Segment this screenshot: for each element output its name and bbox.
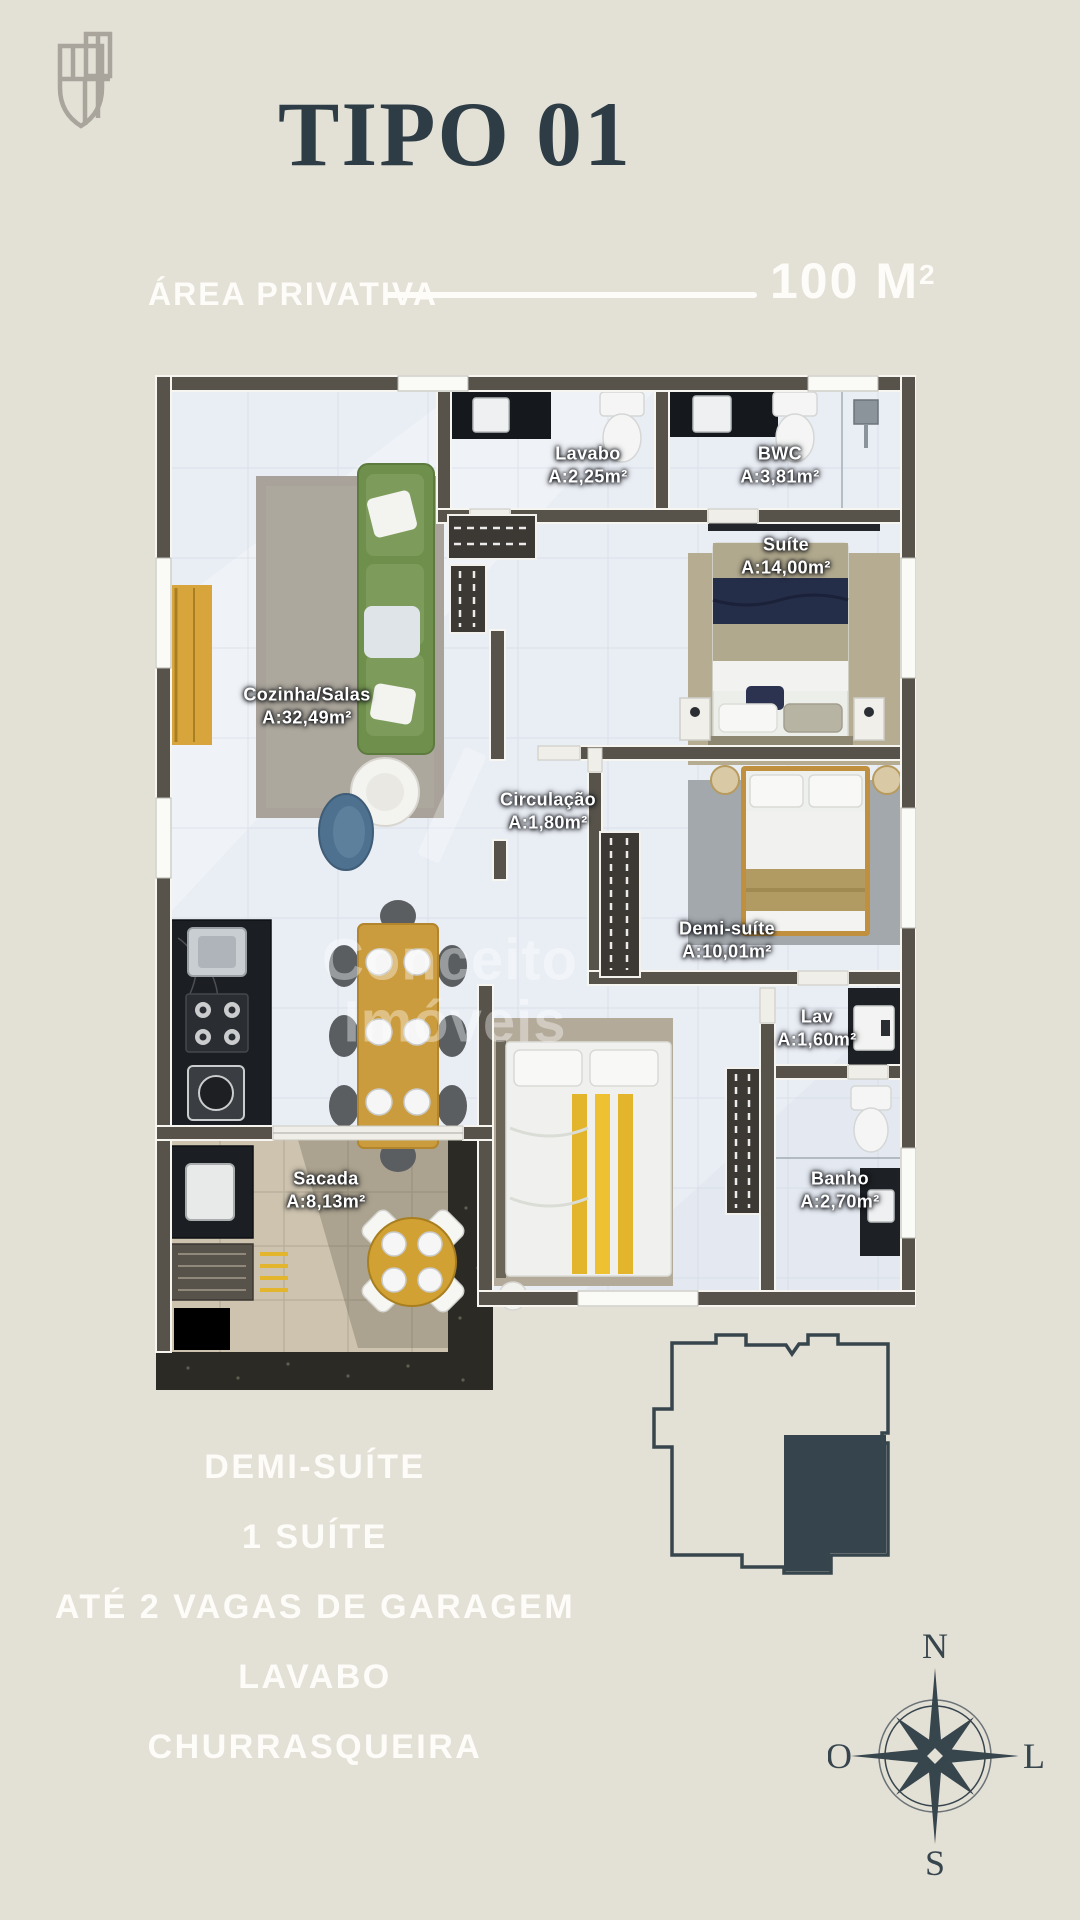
room-name: Demi-suíte: [679, 919, 775, 939]
room-label-lav: Lav A:1,60m²: [777, 1006, 856, 1051]
feature-list: DEMI-SUÍTE 1 SUÍTE ATÉ 2 VAGAS DE GARAGE…: [20, 1432, 610, 1782]
room-label-circulacao: Circulação A:1,80m²: [500, 789, 596, 834]
room-area: A:32,49m²: [262, 707, 352, 727]
private-area-value: 100 M2: [770, 252, 937, 310]
compass-icon: N S O L: [828, 1628, 1052, 1880]
keyplan-unit-highlight: [784, 1435, 886, 1571]
room-label-suite: Suíte A:14,00m²: [741, 534, 831, 579]
watermark-line1: Conceito: [322, 927, 578, 994]
room-label-lavabo: Lavabo A:2,25m²: [548, 443, 627, 488]
room-label-bwc: BWC A:3,81m²: [740, 443, 819, 488]
compass-south-label: S: [925, 1843, 945, 1880]
room-area: A:2,70m²: [800, 1191, 879, 1211]
room-area: A:1,60m²: [777, 1029, 856, 1049]
room-label-sacada: Sacada A:8,13m²: [286, 1168, 365, 1213]
compass-north-label: N: [922, 1628, 948, 1666]
room-name: Lavabo: [555, 444, 620, 464]
room-name: Suíte: [763, 535, 809, 555]
floorplan-graphic: [148, 368, 916, 1392]
area-superscript: 2: [919, 259, 937, 290]
watermark-line2: Imóveis: [344, 989, 567, 1056]
room-area: A:14,00m²: [741, 557, 831, 577]
room-name: Banho: [811, 1169, 869, 1189]
room-name: Sacada: [293, 1169, 358, 1189]
room-name: Lav: [801, 1007, 833, 1027]
room-area: A:8,13m²: [286, 1191, 365, 1211]
feature-churrasqueira: CHURRASQUEIRA: [20, 1712, 610, 1782]
room-area: A:2,25m²: [548, 466, 627, 486]
room-name: Cozinha/Salas: [243, 685, 370, 705]
feature-garagem: ATÉ 2 VAGAS DE GARAGEM: [20, 1572, 610, 1642]
page-title: TIPO 01: [95, 88, 815, 180]
feature-demi-suite: DEMI-SUÍTE: [20, 1432, 610, 1502]
keyplan-graphic: [650, 1333, 892, 1579]
bedroom-furniture: [496, 1040, 671, 1310]
compass-west-label: O: [828, 1736, 852, 1776]
room-name: BWC: [758, 444, 802, 464]
room-name: Circulação: [500, 790, 596, 810]
area-number: 100 M: [770, 253, 919, 309]
room-area: A:3,81m²: [740, 466, 819, 486]
divider-line: [385, 292, 757, 298]
room-label-demi-suite: Demi-suíte A:10,01m²: [679, 918, 775, 963]
room-label-cozinha: Cozinha/Salas A:32,49m²: [243, 684, 370, 729]
room-area: A:10,01m²: [682, 941, 772, 961]
flyer-page: TIPO 01 ÁREA PRIVATIVA 100 M2: [0, 0, 1080, 1920]
room-area: A:1,80m²: [508, 812, 587, 832]
compass-east-label: L: [1023, 1736, 1045, 1776]
feature-suite: 1 SUÍTE: [20, 1502, 610, 1572]
feature-lavabo: LAVABO: [20, 1642, 610, 1712]
room-label-banho: Banho A:2,70m²: [800, 1168, 879, 1213]
floorplan: Conceito Imóveis Cozinha/Salas A:32,49m²…: [148, 368, 916, 1392]
